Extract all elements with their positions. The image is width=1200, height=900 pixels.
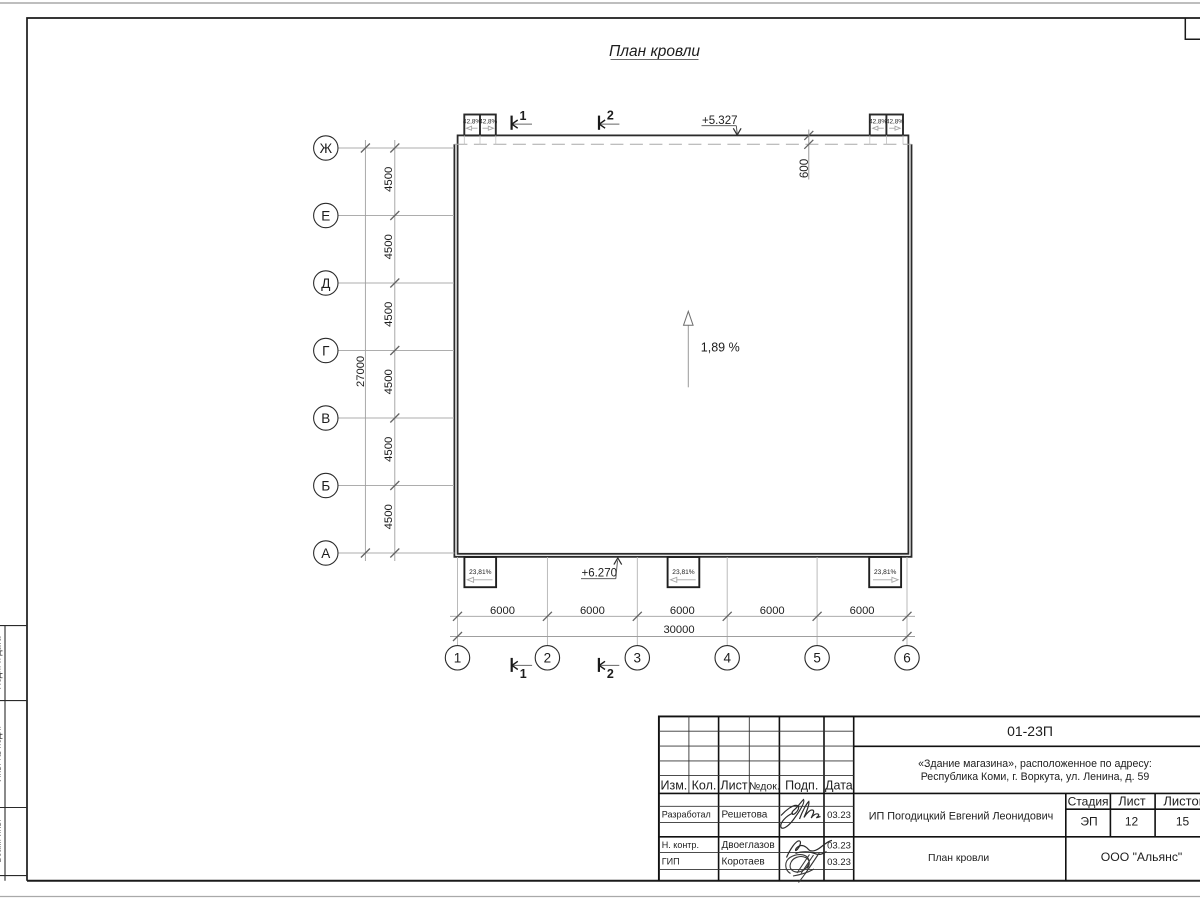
svg-text:Подп.: Подп. (785, 778, 818, 792)
svg-text:№док.: №док. (749, 781, 780, 793)
svg-text:01-23П: 01-23П (1007, 723, 1053, 739)
svg-text:ГИП: ГИП (662, 857, 680, 867)
svg-text:27000: 27000 (355, 356, 367, 387)
svg-text:Н. контр.: Н. контр. (662, 840, 699, 850)
svg-text:1: 1 (454, 651, 462, 666)
svg-text:4500: 4500 (383, 167, 395, 192)
svg-text:03.23: 03.23 (827, 810, 851, 821)
svg-text:23,81%: 23,81% (469, 569, 492, 576)
svg-text:1: 1 (520, 667, 527, 681)
svg-text:03.23: 03.23 (827, 857, 851, 868)
svg-text:ИП Погодицкий Евгений Леонидов: ИП Погодицкий Евгений Леонидович (869, 810, 1054, 822)
svg-text:Республика Коми, г. Воркута, у: Республика Коми, г. Воркута, ул. Ленина,… (921, 771, 1150, 783)
svg-text:2: 2 (607, 109, 614, 123)
svg-text:Б: Б (321, 478, 330, 493)
svg-text:1,89 %: 1,89 % (701, 340, 740, 354)
svg-text:42,8%: 42,8% (886, 118, 904, 125)
svg-text:Лист: Лист (720, 778, 747, 792)
svg-text:ЭП: ЭП (1080, 815, 1097, 829)
svg-text:5: 5 (813, 651, 821, 666)
svg-text:6000: 6000 (850, 605, 875, 617)
svg-text:4500: 4500 (383, 504, 395, 529)
svg-text:Инв. № подл.: Инв. № подл. (0, 726, 3, 782)
svg-text:План кровли: План кровли (609, 43, 700, 60)
svg-text:Двоеглазов: Двоеглазов (722, 840, 775, 851)
svg-text:Листов: Листов (1163, 794, 1200, 809)
svg-text:Д: Д (321, 276, 330, 291)
svg-text:23,81%: 23,81% (874, 569, 897, 576)
svg-text:4500: 4500 (383, 437, 395, 462)
svg-text:4500: 4500 (383, 234, 395, 259)
svg-text:03.23: 03.23 (827, 840, 851, 851)
svg-text:15: 15 (1176, 815, 1190, 829)
svg-text:2: 2 (607, 667, 614, 681)
svg-text:Взам. инв.: Взам. инв. (0, 819, 3, 863)
svg-text:3: 3 (634, 651, 642, 666)
svg-text:42,8%: 42,8% (479, 118, 497, 125)
svg-text:6: 6 (903, 651, 911, 666)
svg-text:30000: 30000 (663, 624, 694, 636)
svg-text:Коротаев: Коротаев (722, 856, 765, 867)
svg-text:12: 12 (1125, 815, 1139, 829)
svg-text:В: В (321, 411, 330, 426)
svg-text:Изм.: Изм. (661, 778, 688, 792)
svg-text:+5.327: +5.327 (702, 115, 738, 127)
svg-text:6000: 6000 (670, 605, 695, 617)
svg-text:А: А (321, 546, 330, 561)
svg-text:6000: 6000 (760, 605, 785, 617)
svg-text:6000: 6000 (490, 605, 515, 617)
svg-text:ООО "Альянс": ООО "Альянс" (1101, 850, 1183, 864)
svg-text:План кровли: План кровли (928, 853, 989, 864)
svg-text:Подп. и дата: Подп. и дата (0, 636, 3, 689)
svg-text:Ж: Ж (320, 141, 333, 156)
svg-text:Г: Г (322, 343, 330, 358)
svg-text:42,8%: 42,8% (869, 118, 887, 125)
svg-text:Решетова: Решетова (722, 810, 768, 821)
svg-text:Стадия: Стадия (1068, 794, 1109, 808)
svg-text:Дата: Дата (825, 778, 853, 792)
svg-text:+6.270: +6.270 (582, 567, 618, 579)
svg-text:23,81%: 23,81% (672, 569, 695, 576)
svg-text:Кол.: Кол. (692, 778, 717, 792)
svg-text:4500: 4500 (383, 369, 395, 394)
svg-text:4: 4 (723, 651, 731, 666)
svg-text:4500: 4500 (383, 302, 395, 327)
svg-text:«Здание магазина», расположенн: «Здание магазина», расположенное по адре… (918, 758, 1152, 770)
svg-text:1: 1 (520, 109, 527, 123)
svg-text:2: 2 (544, 651, 552, 666)
svg-text:6000: 6000 (580, 605, 605, 617)
svg-text:Лист: Лист (1118, 794, 1145, 808)
svg-text:Разработал: Разработал (662, 810, 711, 820)
svg-text:Е: Е (321, 208, 330, 223)
svg-text:600: 600 (798, 159, 811, 178)
